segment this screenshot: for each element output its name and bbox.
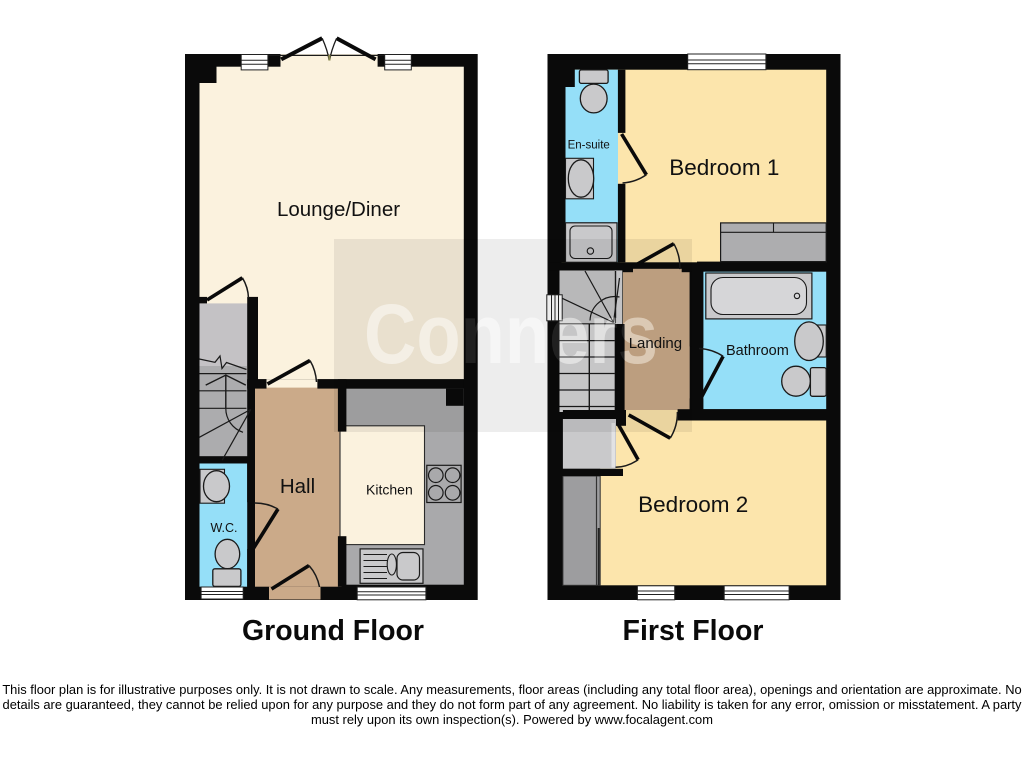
svg-text:Kitchen: Kitchen: [366, 482, 413, 498]
svg-text:details are guaranteed, they c: details are guaranteed, they cannot be r…: [3, 697, 1022, 712]
svg-text:Landing: Landing: [629, 335, 682, 352]
svg-text:Bedroom 2: Bedroom 2: [638, 492, 748, 517]
svg-text:First Floor: First Floor: [623, 615, 764, 647]
svg-text:must rely upon its own inspect: must rely upon its own inspection(s). Po…: [311, 712, 713, 727]
svg-text:Lounge/Diner: Lounge/Diner: [277, 198, 400, 221]
svg-text:This floor plan is for illustr: This floor plan is for illustrative purp…: [2, 682, 1021, 697]
svg-text:En-suite: En-suite: [568, 140, 610, 152]
svg-text:Ground Floor: Ground Floor: [242, 615, 424, 647]
svg-text:Conners: Conners: [364, 287, 658, 381]
svg-text:Hall: Hall: [280, 475, 315, 498]
svg-text:Bedroom 1: Bedroom 1: [669, 155, 779, 180]
svg-text:W.C.: W.C.: [210, 521, 237, 535]
svg-text:Bathroom: Bathroom: [726, 343, 789, 359]
